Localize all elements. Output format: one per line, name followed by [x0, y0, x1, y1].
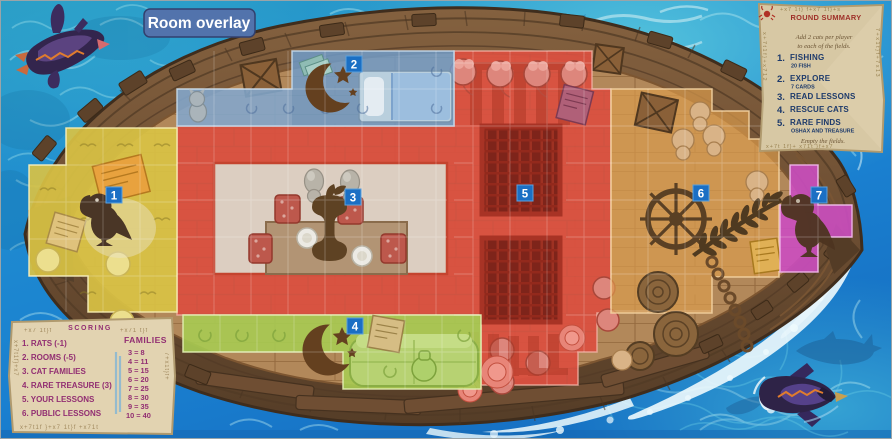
svg-text:2: 2	[351, 60, 357, 72]
svg-text:x+7t1f}+x7: x+7t1f}+x7	[12, 340, 18, 376]
svg-text:FAMILIES: FAMILIES	[124, 335, 167, 345]
svg-text:3: 3	[350, 193, 356, 205]
svg-text:10 = 40: 10 = 40	[126, 411, 151, 420]
svg-text:+x7 1t} f+x7 1t}+s: +x7 1t} f+x7 1t}+s	[780, 7, 841, 13]
svg-text:+x71 t}f: +x71 t}f	[120, 328, 148, 334]
svg-text:7+x1t}f+: 7+x1t}f+	[163, 352, 169, 380]
svg-text:3.: 3.	[777, 92, 785, 103]
svg-text:4 = 11: 4 = 11	[128, 357, 148, 366]
svg-text:2.: 2.	[777, 74, 785, 85]
svg-text:6. PUBLIC LESSONS: 6. PUBLIC LESSONS	[22, 409, 102, 418]
svg-text:2. ROOMS (-5): 2. ROOMS (-5)	[22, 353, 76, 362]
svg-text:5.: 5.	[777, 118, 785, 129]
svg-text:7+x1t}f+7x13: 7+x1t}f+7x13	[874, 28, 880, 78]
svg-text:3. CAT FAMILIES: 3. CAT FAMILIES	[22, 367, 87, 376]
svg-text:RARE FINDS: RARE FINDS	[790, 118, 841, 127]
svg-text:7 CARDS: 7 CARDS	[791, 85, 815, 91]
svg-text:4: 4	[352, 322, 359, 334]
svg-text:9 = 35: 9 = 35	[128, 402, 149, 411]
svg-text:5 = 15: 5 = 15	[128, 366, 149, 375]
svg-text:RESCUE CATS: RESCUE CATS	[790, 105, 849, 114]
svg-text:ROUND SUMMARY: ROUND SUMMARY	[791, 13, 862, 22]
svg-text:7 = 25: 7 = 25	[128, 384, 149, 393]
svg-text:6: 6	[698, 189, 704, 201]
svg-text:Add 2 cats per player: Add 2 cats per player	[795, 34, 853, 41]
svg-text:20 FISH: 20 FISH	[791, 64, 811, 70]
svg-text:6 = 20: 6 = 20	[128, 375, 149, 384]
svg-text:4.: 4.	[777, 105, 785, 116]
svg-text:1.: 1.	[777, 53, 785, 64]
svg-text:8 = 30: 8 = 30	[128, 393, 149, 402]
svg-text:3 = 8: 3 = 8	[128, 348, 145, 357]
svg-text:SCORING: SCORING	[68, 325, 112, 332]
svg-text:Room overlay: Room overlay	[148, 15, 251, 32]
svg-text:READ LESSONS: READ LESSONS	[790, 92, 856, 101]
svg-text:to each of the fields.: to each of the fields.	[797, 43, 851, 50]
svg-text:x+7t1f}+x712: x+7t1f}+x712	[761, 32, 767, 82]
svg-text:EXPLORE: EXPLORE	[790, 74, 831, 83]
svg-text:4. RARE TREASURE (3): 4. RARE TREASURE (3)	[22, 381, 112, 390]
svg-text:FISHING: FISHING	[790, 53, 825, 62]
svg-text:x+7t1f }+x7 1t}f +x71t: x+7t1f }+x7 1t}f +x71t	[20, 425, 99, 431]
svg-text:5: 5	[522, 189, 529, 201]
svg-text:7: 7	[816, 191, 822, 203]
svg-text:+x7 1t}f: +x7 1t}f	[24, 328, 52, 334]
svg-text:1: 1	[111, 191, 118, 203]
svg-text:x+7t 1f}+ x71t }f+x7: x+7t 1f}+ x71t }f+x7	[766, 144, 834, 150]
svg-text:5. YOUR LESSONS: 5. YOUR LESSONS	[22, 395, 95, 404]
svg-text:1. RATS (-1): 1. RATS (-1)	[22, 339, 67, 348]
svg-text:OSHAX AND TREASURE: OSHAX AND TREASURE	[791, 129, 855, 135]
